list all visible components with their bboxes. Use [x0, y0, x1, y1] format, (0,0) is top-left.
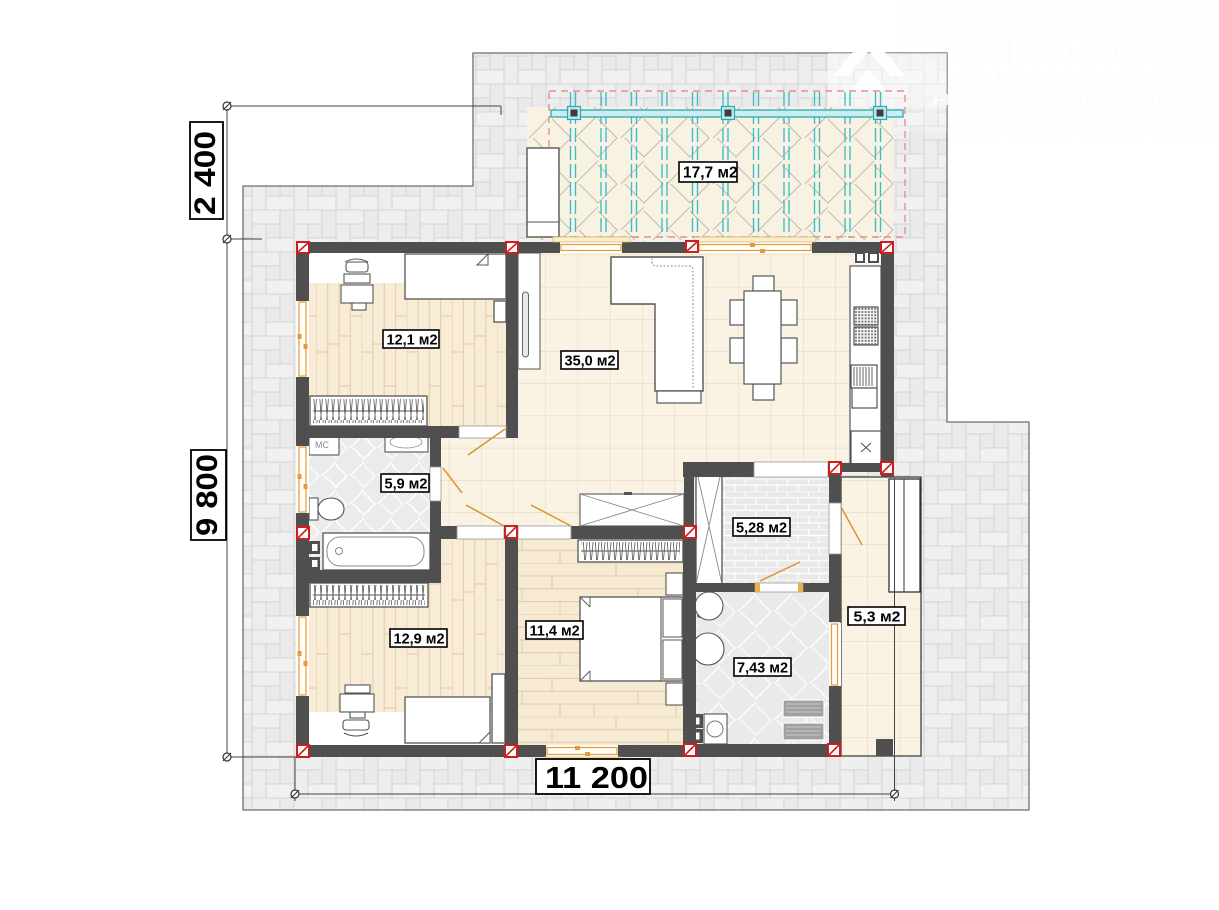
svg-text:11,4 м2: 11,4 м2	[530, 624, 580, 640]
svg-text:5,28 м2: 5,28 м2	[736, 521, 787, 537]
svg-text:12,1 м2: 12,1 м2	[387, 333, 438, 349]
svg-text:35,0 м2: 35,0 м2	[565, 354, 616, 370]
svg-text:МС: МС	[315, 440, 329, 450]
svg-text:НЕДВИЖИМОСТЬ: НЕДВИЖИМОСТЬ	[931, 92, 1185, 109]
svg-text:2 400: 2 400	[189, 131, 222, 215]
svg-text:5,3 м2: 5,3 м2	[854, 610, 901, 626]
svg-text:9 800: 9 800	[191, 454, 224, 536]
svg-text:11 200: 11 200	[545, 760, 648, 795]
svg-text:5,9 м2: 5,9 м2	[385, 477, 428, 493]
svg-text:7,43 м2: 7,43 м2	[737, 661, 788, 677]
svg-text:17,7 м2: 17,7 м2	[683, 165, 738, 182]
svg-text:12,9 м2: 12,9 м2	[394, 632, 445, 648]
svg-text:ONREALT: ONREALT	[947, 31, 1180, 91]
